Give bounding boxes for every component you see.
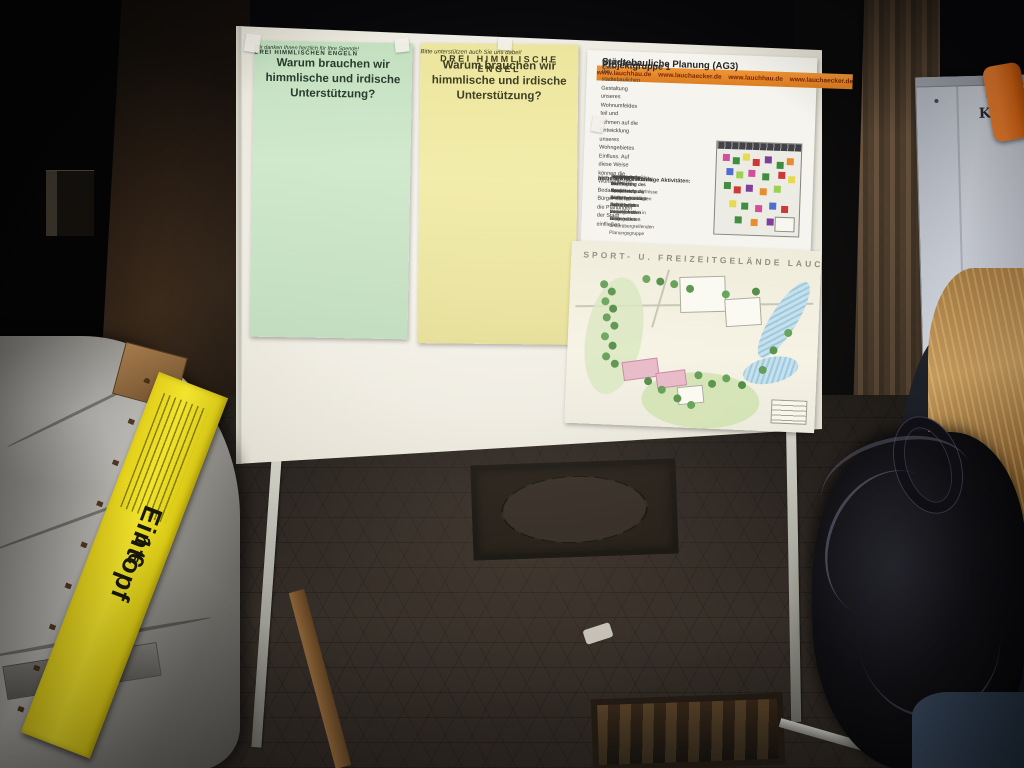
map-colored-zones [723,154,730,161]
map-caption [713,239,799,242]
list-item: Fertigstellung des Bolzplatzes mit Ballf… [605,175,640,225]
poster-green: Warum brauchen wir himmlische und irdisc… [249,41,412,340]
siteplan-stream [741,352,801,389]
wall-mounted-box [46,170,94,236]
poster-yellow: Warum brauchen wir himmlische und irdisc… [417,43,578,345]
poster-yellow-highlight: DREI HIMMLISCHE ENGEL [420,53,578,75]
manhole-core [502,475,647,545]
drain-grate [591,693,785,768]
map-legend [774,217,795,233]
siteplan-title-block [770,399,807,424]
poster-siteplan: SPORT- U. FREIZEITGELÄNDE LAUCHÄCKER [564,241,821,433]
siteplan-road [651,270,670,328]
tape-piece [498,38,513,51]
poster-green-title: Warum brauchen wir himmlische und irdisc… [263,56,404,103]
siteplan-building [724,297,762,327]
siteplan-building [679,276,726,313]
siteplan-building [677,385,705,405]
poster-yellow-footer: Bitte unterstützen auch Sie uns dabei! [420,49,521,56]
tape-piece [394,37,409,52]
tape-piece [244,33,261,53]
zoning-map [713,141,802,238]
night-photo-scene: Kling Warum brauchen wir himmlische und … [0,0,1024,768]
siteplan-meadow [576,273,652,399]
screw-icon [934,99,938,103]
manhole-cover [470,458,678,560]
map-header-strip [717,142,801,152]
siteplan-sports-field [622,358,660,382]
person-right-jeans [912,692,1024,768]
siteplan-drawing [571,265,815,427]
poster-project: www.lauchhau.de www.lauchaecker.de www.l… [581,50,818,258]
